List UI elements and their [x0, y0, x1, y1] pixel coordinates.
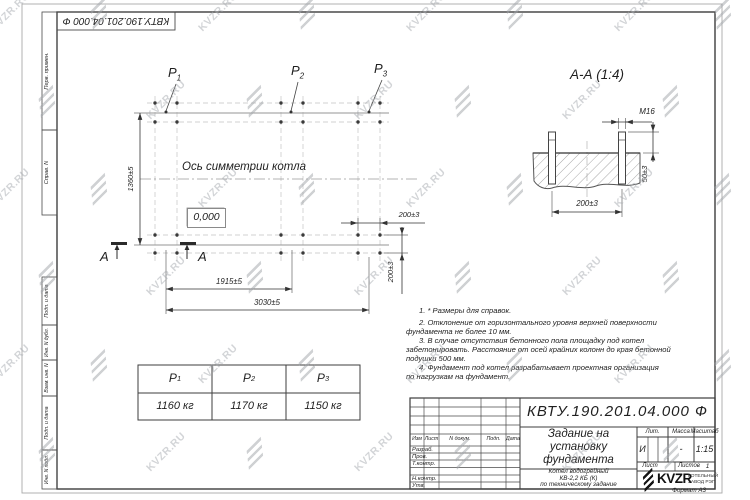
load-point-label-p3: P3 — [374, 62, 387, 79]
load-point-label-p1: P1 — [168, 66, 181, 83]
kvzr-logo-icon — [643, 468, 654, 494]
load-table-header-p3: P3 — [286, 365, 360, 393]
note-line: 3. В случае отсутствия бетонного пола пл… — [406, 336, 731, 345]
brand-sub-line-2: ЗАВОД РЭП — [688, 480, 715, 485]
note-line: фундамента не более 10 мм. — [406, 327, 718, 336]
scale-value: 1:15 — [694, 437, 715, 462]
load-table-value-p2: 1170 кг — [212, 393, 286, 420]
load-table-value-p1: 1160 кг — [138, 393, 212, 420]
note-line: забетонировать. Расстояние от осей крайн… — [406, 345, 718, 354]
col-header-list: Лист — [424, 435, 439, 445]
level-mark: 0,000 — [187, 208, 226, 228]
note-line: 4. Фундамент под котел разрабатывает про… — [406, 363, 731, 372]
format-label: Формат А3 — [660, 488, 718, 495]
row-razrab: Разраб. — [412, 447, 433, 453]
load-table-header-p1: P1 — [138, 365, 212, 393]
lit-label: Лит. — [637, 427, 668, 437]
corner-stamp-number: КВТУ.190.201.04.000 Ф — [57, 12, 175, 30]
margin-stamp-sprav-n: Справ. N — [44, 130, 50, 215]
dim-50: 50±3 — [640, 157, 649, 191]
load-point-label-p2: P2 — [291, 64, 304, 81]
col-header-doc: N докум. — [439, 435, 481, 445]
dim-200-section: 200±3 — [557, 200, 617, 209]
text-layer: КВТУ.190.201.04.000 Ф Перв. примен. Спра… — [0, 0, 750, 500]
title-line-1: Задание на — [522, 428, 635, 441]
drawing-sheet: КВТУ.190.201.04.000 Ф Перв. примен. Спра… — [0, 0, 750, 500]
margin-stamp-vzam-inv: Взам. инв. N — [44, 360, 50, 396]
margin-stamp-perv-primen: Перв. примен. — [44, 12, 50, 130]
dim-3030: 3030±5 — [237, 299, 297, 308]
sheets-value: 1 — [701, 462, 714, 471]
col-header-data: Дата — [506, 435, 520, 445]
dim-1915: 1915±5 — [199, 278, 259, 287]
row-prov: Пров. — [412, 454, 427, 460]
title-line-3: фундамента — [522, 454, 635, 467]
title-block-doc-number: КВТУ.190.201.04.000 Ф — [522, 399, 713, 425]
note-line: по нагрузкам на фундамент. — [406, 372, 718, 381]
title-line-2: установку — [522, 441, 635, 454]
dim-200-vertical: 200±3 — [386, 248, 395, 296]
brand-name: KVZR — [657, 472, 692, 487]
dim-1360: 1360±5 — [126, 147, 135, 211]
brand-sub-line-1: КОТЕЛЬНЫЙ — [688, 474, 718, 479]
sheets-label: Листов — [677, 462, 701, 471]
section-letter-left: А — [100, 250, 109, 264]
margin-stamp-podp-data-2: Подп. и дата — [44, 396, 50, 450]
col-header-izm: Изм — [410, 435, 424, 445]
note-line: 1. * Размеры для справок. — [406, 306, 731, 315]
margin-stamp-podp-data-1: Подп. и дата — [44, 277, 50, 325]
axis-of-symmetry-label: Ось симметрии котла — [182, 161, 306, 174]
mass-value: - — [668, 437, 694, 462]
col-header-podp: Подп. — [481, 435, 506, 445]
load-table-value-p3: 1150 кг — [286, 393, 360, 420]
row-nkontr: Н.контр. — [412, 476, 437, 482]
row-utv: Утв. — [412, 483, 425, 489]
section-letter-right: А — [198, 250, 207, 264]
dim-200-horizontal: 200±3 — [387, 211, 431, 219]
load-table-header-p2: P2 — [212, 365, 286, 393]
scale-label: Масштаб — [694, 427, 715, 437]
margin-stamp-inv-podl: Инв. N подл. — [44, 450, 50, 489]
note-line: 2. Отклонение от горизонтального уровня … — [406, 318, 731, 327]
subtitle-line-3: по техническому задание — [522, 483, 635, 490]
row-tkontr: Т.контр. — [412, 461, 435, 467]
lit-value: И — [637, 437, 648, 462]
margin-stamp-inv-dubl: Инв. N дубл. — [44, 325, 50, 360]
note-line: подушки 500 мм. — [406, 354, 718, 363]
section-title: А-А (1:4) — [556, 68, 638, 83]
dim-m16: M16 — [627, 108, 667, 117]
